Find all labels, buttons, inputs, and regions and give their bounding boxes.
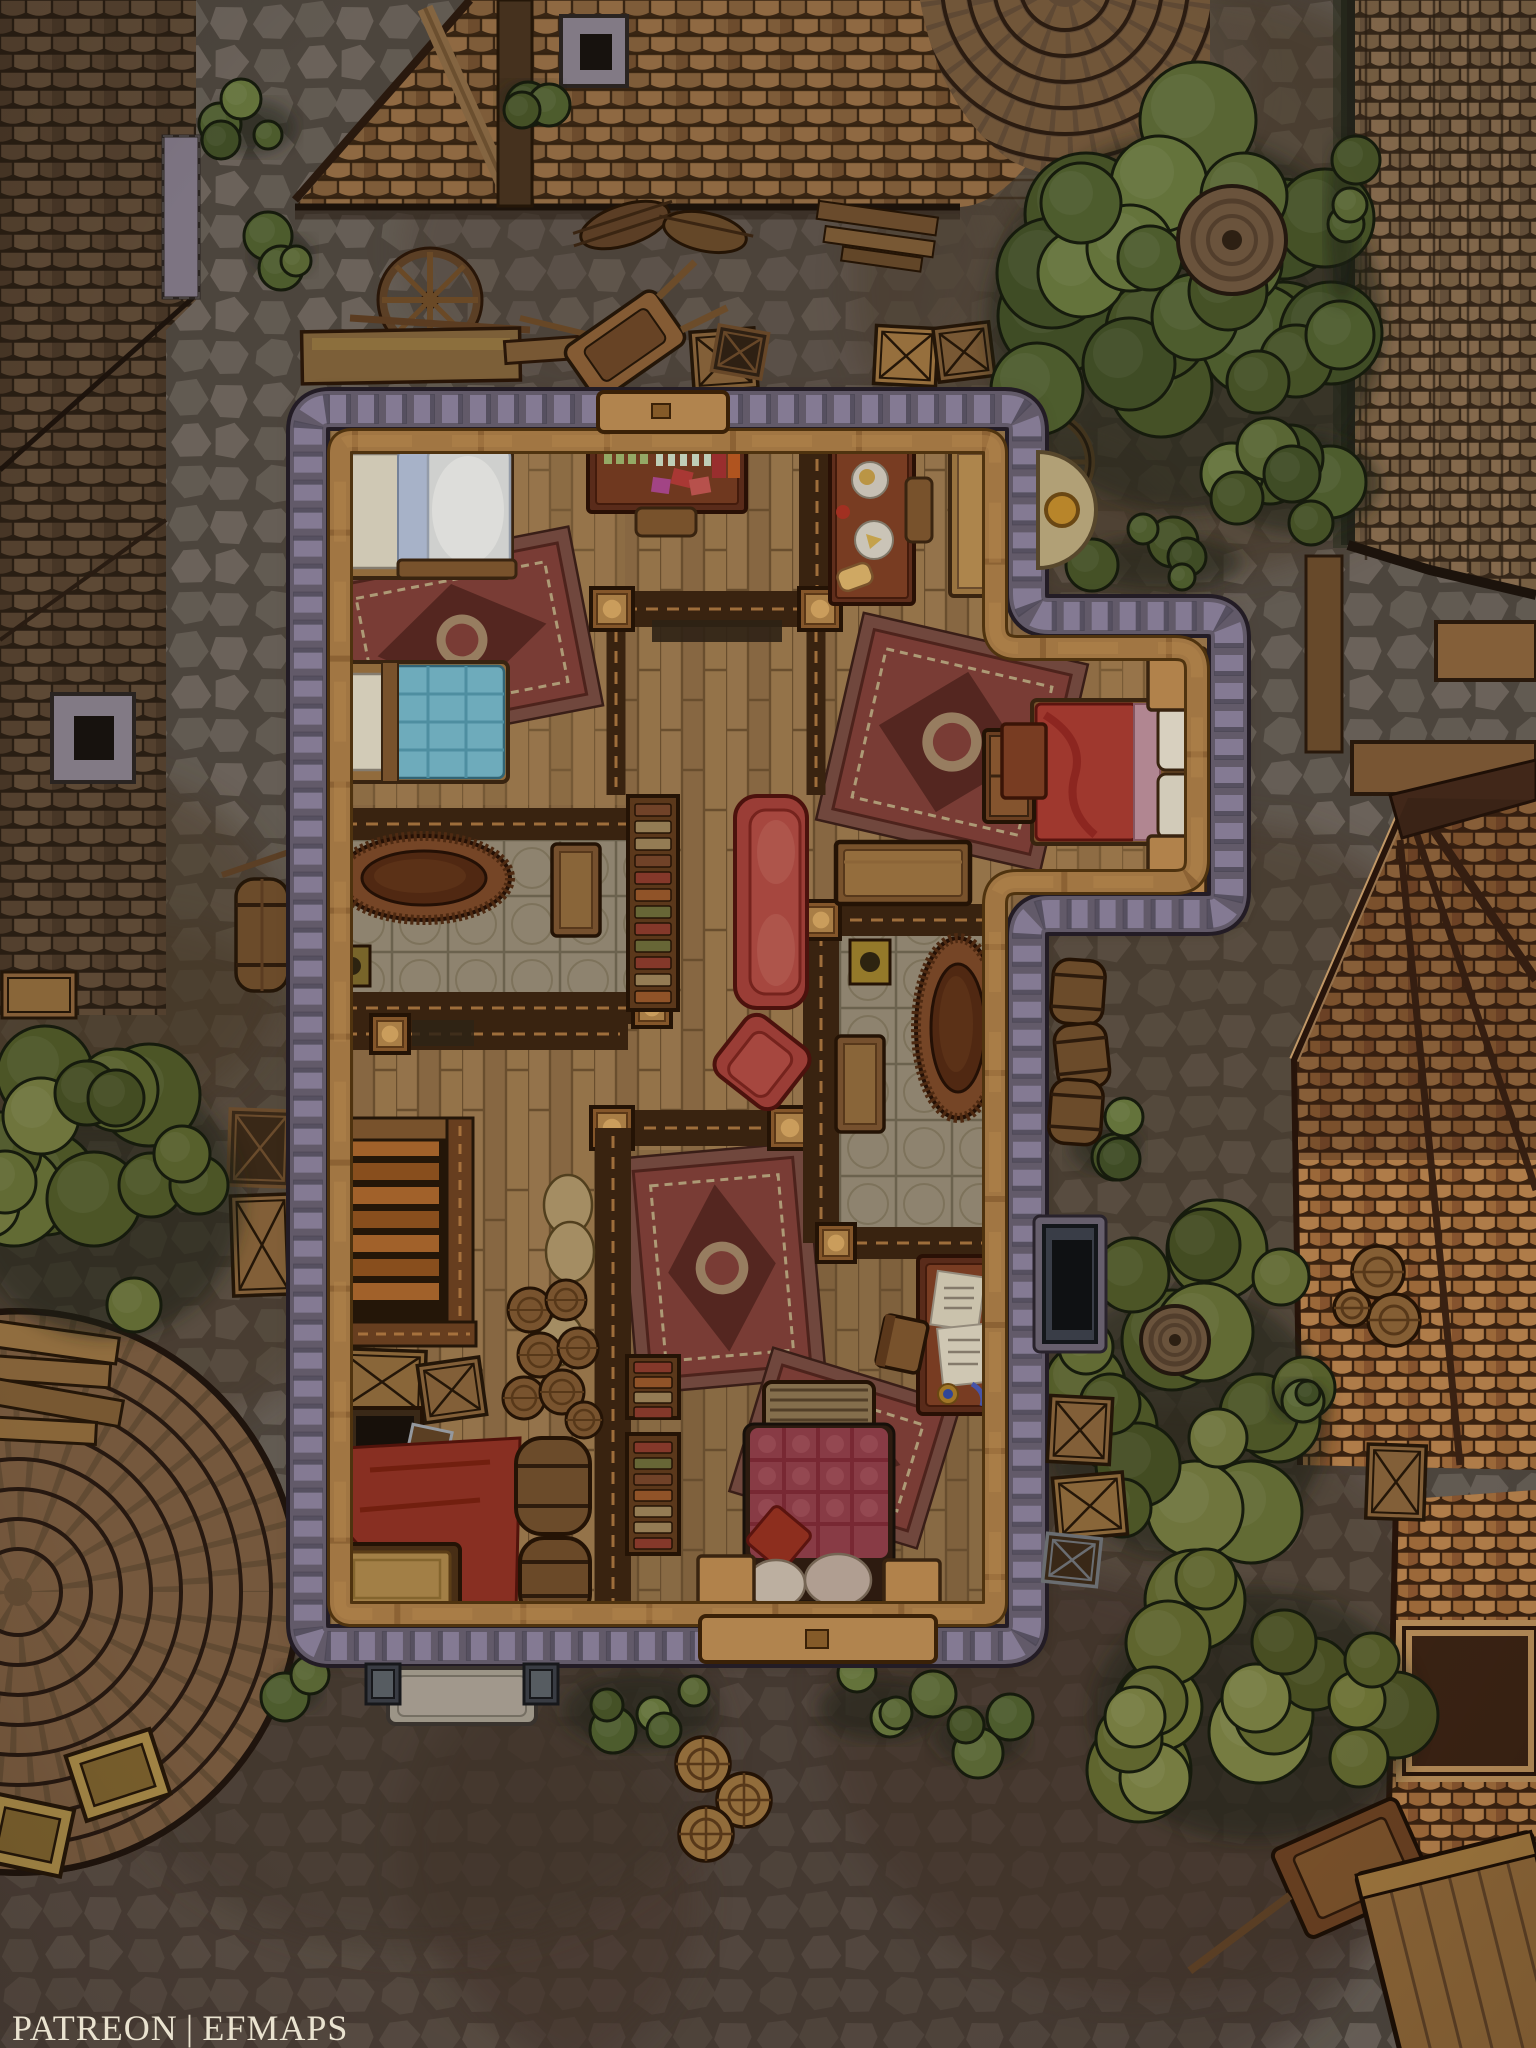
svg-text:PATREON | EFMAPS: PATREON | EFMAPS xyxy=(12,2008,348,2048)
